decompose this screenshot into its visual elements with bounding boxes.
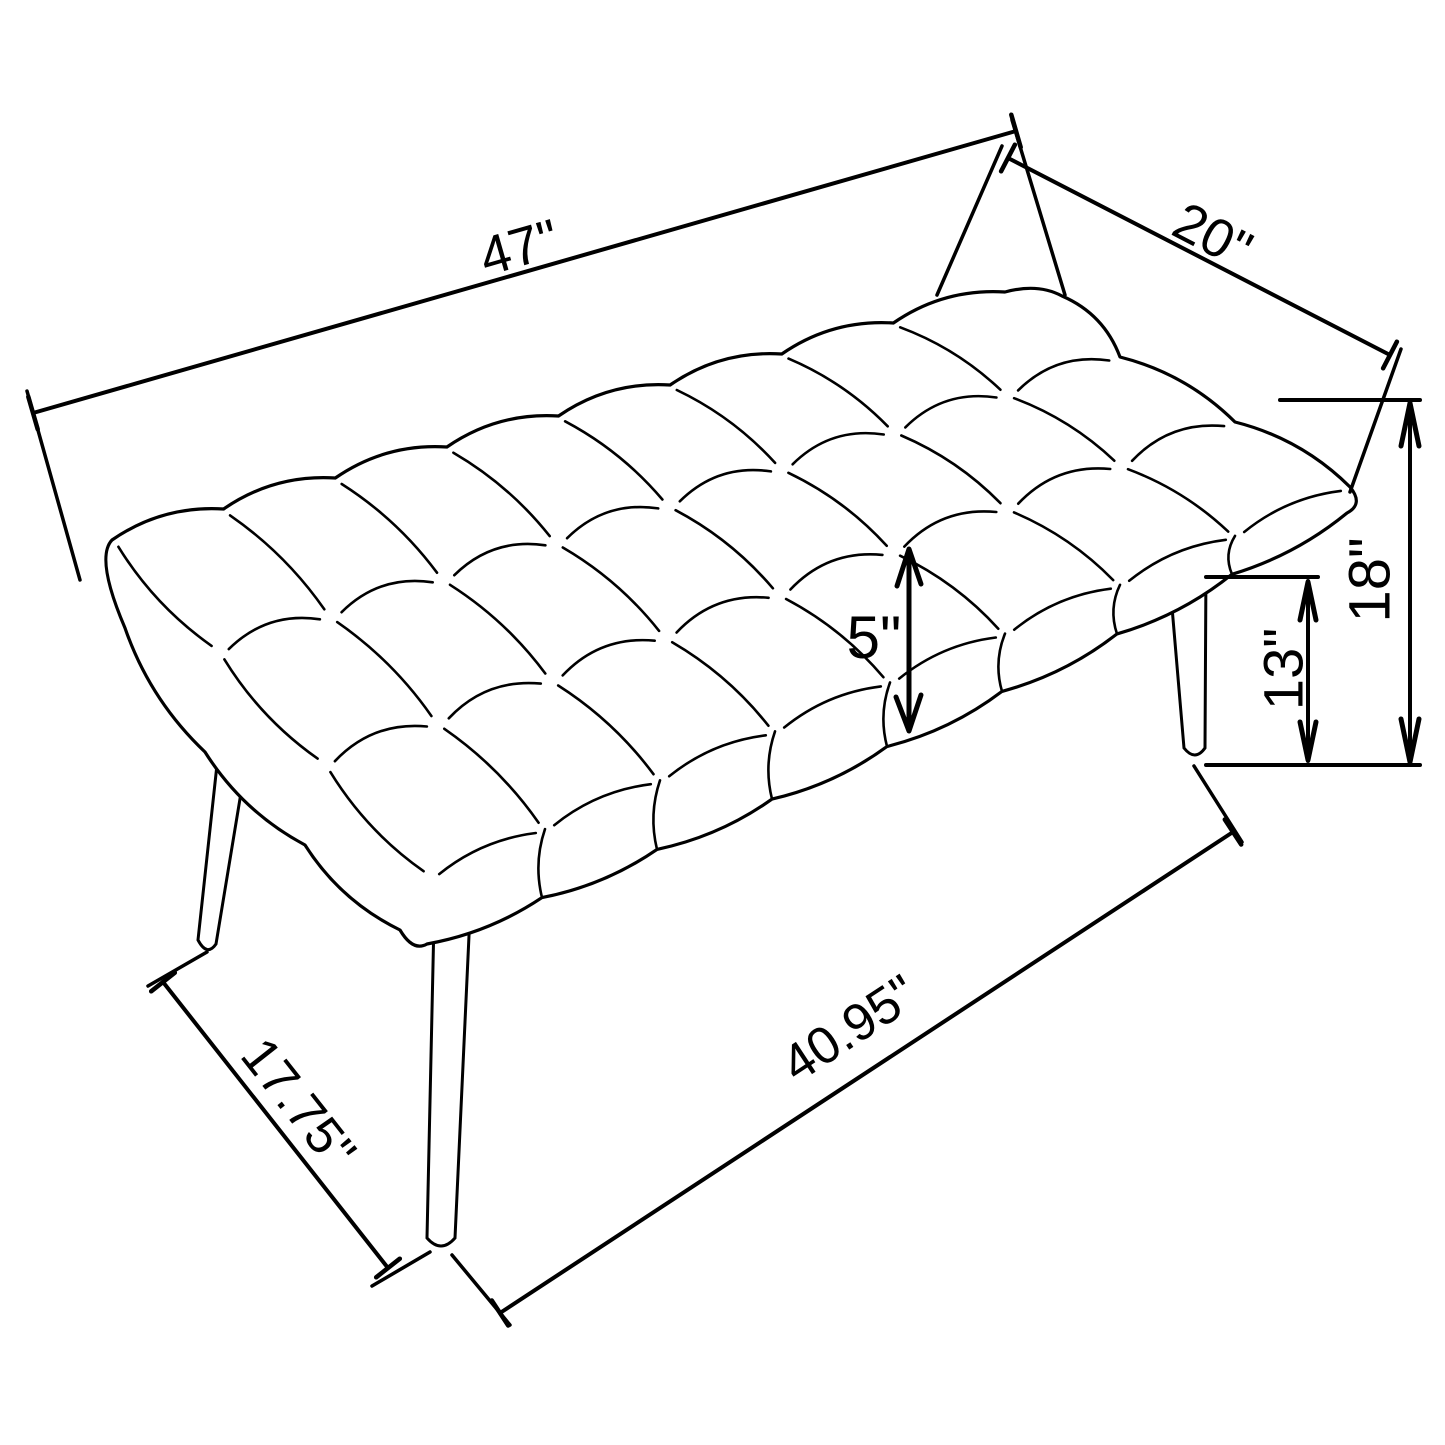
bench-cushion bbox=[106, 288, 1356, 946]
dim-line-4095 bbox=[500, 832, 1233, 1313]
dim-tick bbox=[492, 1301, 508, 1326]
dim-label-overall-height: 18" bbox=[1337, 537, 1402, 622]
dim-label-overall-depth: 20" bbox=[1164, 191, 1262, 281]
dim-label-leg-height: 13" bbox=[1252, 628, 1315, 710]
dimension-leg-height: 13" bbox=[1206, 577, 1318, 761]
dim-tick bbox=[376, 1259, 400, 1278]
dim-line-1775 bbox=[163, 982, 388, 1268]
dim-label-cushion-thickness: 5" bbox=[847, 604, 902, 671]
dim-label-leg-span-front: 40.95" bbox=[772, 964, 928, 1094]
diagram-page: 47" 20" 18" 13" bbox=[0, 0, 1445, 1445]
dim-label-overall-length: 47" bbox=[473, 208, 566, 288]
extension-line bbox=[937, 146, 1002, 295]
dimension-leg-span-side: 17.75" bbox=[148, 952, 430, 1286]
bench-dimension-diagram: 47" 20" 18" 13" bbox=[0, 0, 1445, 1445]
dim-tick bbox=[1001, 145, 1015, 172]
bench-leg-front-left bbox=[427, 914, 470, 1246]
extension-line bbox=[1350, 349, 1401, 492]
extension-line bbox=[148, 952, 207, 986]
dim-tick bbox=[1225, 820, 1241, 845]
dim-label-leg-span-side: 17.75" bbox=[229, 1027, 366, 1180]
extension-line bbox=[1194, 766, 1242, 842]
